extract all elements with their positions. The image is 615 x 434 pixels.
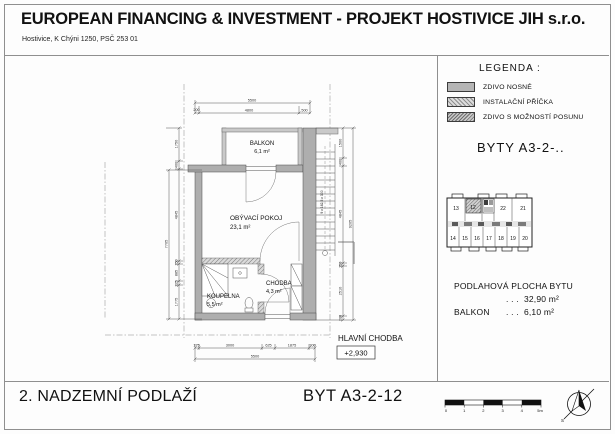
unit-number: 14 [450,236,456,242]
page-title: EUROPEAN FINANCING & INVESTMENT - PROJEK… [21,10,585,29]
dim-value: 5500 [248,99,256,103]
living-room-door [260,222,299,261]
scale-tick: 5m [537,408,543,413]
floor-plan: 9 x 162,5 x 300 BALKON 6,1 m² OBÝVACÍ PO… [95,56,440,380]
balcony-walls [222,128,338,165]
dim-value: 175 [193,344,199,348]
dots: . . . [506,294,519,304]
room-area-koupelna: 5,5 m² [207,302,223,308]
dim-value: 150 [175,259,179,265]
dim-value: 200 [193,108,199,112]
legend-swatch-solid [447,82,475,92]
room-label-koupelna: KOUPELNA [207,294,240,300]
room-area-chodba: 4,3 m² [266,289,282,295]
dim-value: 885 [175,270,179,276]
room-label-obyvaci-pokoj: OBÝVACÍ POKOJ [230,213,282,222]
balcony-door [246,167,276,203]
unit-number: 19 [510,236,516,242]
dim-value: 200 [339,315,343,321]
scale-tick: 0 [445,408,448,413]
dim-value: 1750 [175,140,179,148]
dim-value: 1500 [339,139,343,147]
legend-item-label: ZDIVO NOSNÉ [483,84,532,91]
area-table-balcony-label: BALKON [454,307,490,317]
stair-note: 9 x 162,5 x 300 [320,190,324,213]
north-label: S [561,418,564,423]
footer-floor-title: 2. NADZEMNÍ PODLAŽÍ [19,388,197,406]
company-address: Hostivice, K Chýni 1250, PSČ 253 01 [22,36,138,43]
key-plan-corridor [448,221,531,227]
area-table-floor-label: PODLAHOVÁ PLOCHA BYTU [454,281,573,291]
neighbour-wall-stubs [338,242,354,264]
dim-value: 500 [301,109,307,113]
staircase: 9 x 162,5 x 300 [316,144,335,256]
dim-value: 400 [175,162,179,168]
scale-tick: 2 [482,408,485,413]
area-table-balcony-value: . . . 6,10 m² [506,307,554,317]
legend-heading: LEGENDA : [479,63,541,74]
legend-item-label: INSTALAČNÍ PŘÍČKA [483,99,553,106]
legend-item-zdivo-posun: ZDIVO S MOŽNOSTÍ POSUNU [447,112,584,122]
dim-value: 300 [309,344,315,348]
dim-value: 1875 [288,344,296,348]
value: 6,10 m² [524,307,554,317]
dimensions-right: 1500 400 4845 150 2510 200 9205 [316,127,356,322]
dim-value: 4845 [175,211,179,219]
dots: . . . [506,307,519,317]
legend-item-label: ZDIVO S MOŽNOSTÍ POSUNU [483,114,584,121]
footer-unit-title: BYT A3-2-12 [303,387,403,406]
wardrobe-shaft [291,264,302,310]
unit-number: 16 [474,236,480,242]
main-corridor-label: HLAVNÍ CHODBA [338,334,403,343]
unit-number: 15 [462,236,468,242]
unit-number: 12 [470,205,476,211]
unit-number: 13 [453,206,459,212]
dim-value: 3000 [226,344,234,348]
unit-number: 22 [500,206,506,212]
legend-item-instalacni-pricka: INSTALAČNÍ PŘÍČKA [447,97,553,107]
scale-tick: 1 [463,408,466,413]
unit-number: 17 [486,236,492,242]
dim-value: 1775 [175,298,179,306]
dim-value: 9205 [349,220,353,228]
bathtub [202,264,228,296]
dim-value: 4800 [245,109,253,113]
scale-bar: 0 1 2 3 4 5m [443,397,547,415]
toilet [245,298,253,313]
elevation-value: +2,930 [344,349,367,358]
scale-tick: 4 [521,408,524,413]
legend-swatch-hatch-dense [447,112,475,122]
area-table-floor-value: . . . 32,90 m² [506,294,559,304]
unit-number: 21 [520,206,526,212]
room-area-balkon: 6,1 m² [254,149,270,155]
building-key-plan: 13 12 22 21 14 15 16 17 18 19 20 [444,191,536,255]
legend-item-zdivo-nosne: ZDIVO NOSNÉ [447,82,532,92]
dim-value: 5500 [251,355,259,359]
dim-value: 2510 [339,287,343,295]
unit-number: 18 [498,236,504,242]
dimensions-top: 5500 200 4800 500 [193,99,311,115]
dim-value: 625 [265,344,271,348]
unit-number: 20 [522,236,528,242]
dim-value: 4845 [339,210,343,218]
dim-value: 225 [175,280,179,286]
legend-swatch-hatch [447,97,475,107]
room-label-chodba: CHODBA [266,281,292,287]
key-plan-core [483,199,494,213]
dimensions-bottom: 175 3000 625 1875 300 5500 [193,344,316,363]
dim-value: 150 [339,262,343,268]
byty-heading: BYTY A3-2-.. [477,140,565,155]
room-label-balkon: BALKON [250,141,274,147]
washing-machine [233,268,247,278]
scale-tick: 3 [501,408,504,413]
north-arrow-icon: S [558,385,598,425]
room-area-obyvaci-pokoj: 23,1 m² [230,225,250,231]
footer-divider [5,381,609,382]
value: 32,90 m² [524,294,559,304]
bathroom-door [261,274,289,302]
dim-value: 400 [339,159,343,165]
dim-value: 7705 [165,240,169,248]
